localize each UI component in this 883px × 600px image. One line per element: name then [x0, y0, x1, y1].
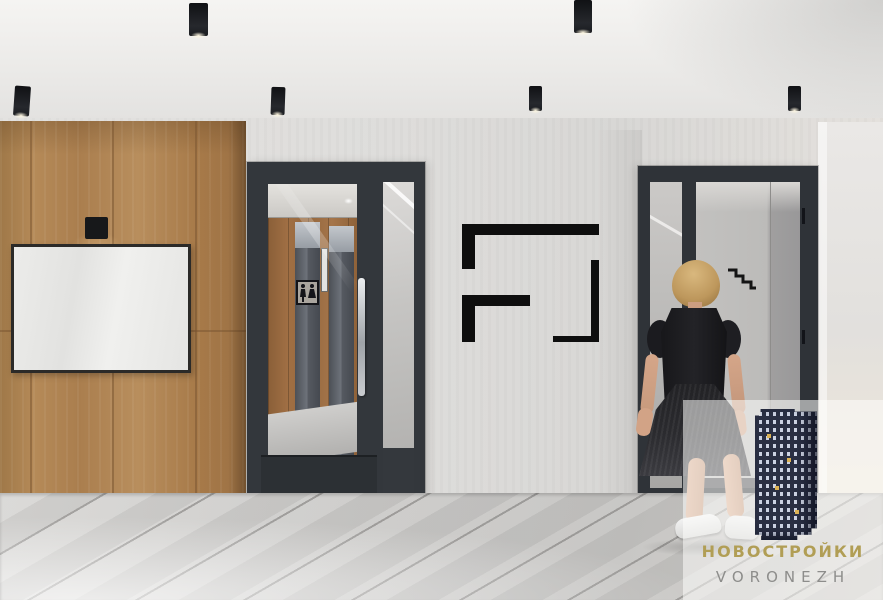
lit-window — [795, 510, 799, 514]
watermark-panel: НОВОСТРОЙКИ VORONEZH — [683, 400, 883, 600]
ceiling-spotlight — [189, 3, 208, 36]
door1-handle — [358, 278, 365, 396]
woman-hair — [672, 260, 720, 307]
ceiling-shade — [623, 0, 883, 126]
ceiling-spotlight — [788, 86, 801, 111]
ceiling-spotlight — [574, 0, 592, 33]
lit-window — [775, 486, 779, 490]
watermark-title: НОВОСТРОЙКИ — [683, 542, 883, 561]
framed-white-board — [11, 244, 191, 373]
door1-glass — [268, 184, 357, 455]
lobby-floor-reflection — [268, 401, 357, 455]
logo-top-corner-v — [462, 224, 475, 269]
elevator-lobby-door — [247, 162, 425, 498]
watermark-subtitle: VORONEZH — [683, 568, 883, 586]
ceiling-spotlight — [529, 86, 542, 111]
stairwell-ceiling-reflection — [696, 182, 800, 212]
wood-corner-shadow — [228, 121, 246, 493]
lobby-render: НОВОСТРОЙКИ VORONEZH — [0, 0, 883, 600]
ceiling-spotlight — [271, 87, 286, 115]
woman-arm — [640, 353, 659, 414]
lit-window — [767, 434, 771, 438]
door-hinge — [802, 330, 805, 344]
sidelight-light-streak — [383, 182, 414, 219]
logo-bottom-bracket-h — [553, 336, 599, 342]
stairwell-ceiling-line — [650, 209, 682, 247]
wc-sign-icon — [296, 280, 319, 305]
door1-sidelight-panel — [383, 448, 414, 498]
wall-sconce-light — [85, 217, 108, 239]
lobby-light-reflection — [344, 198, 353, 204]
logo-mid-corner-v — [462, 295, 475, 342]
door-hinge — [802, 208, 805, 224]
skyscraper-icon — [755, 409, 817, 540]
logo-top-corner-h — [462, 224, 599, 235]
logo-bottom-bracket-v — [591, 260, 599, 342]
door1-kick-panel — [261, 455, 377, 498]
wood-seam — [195, 121, 197, 493]
door1-sidelight — [383, 182, 414, 448]
lit-window — [787, 458, 791, 462]
ceiling-spotlight — [13, 85, 31, 116]
